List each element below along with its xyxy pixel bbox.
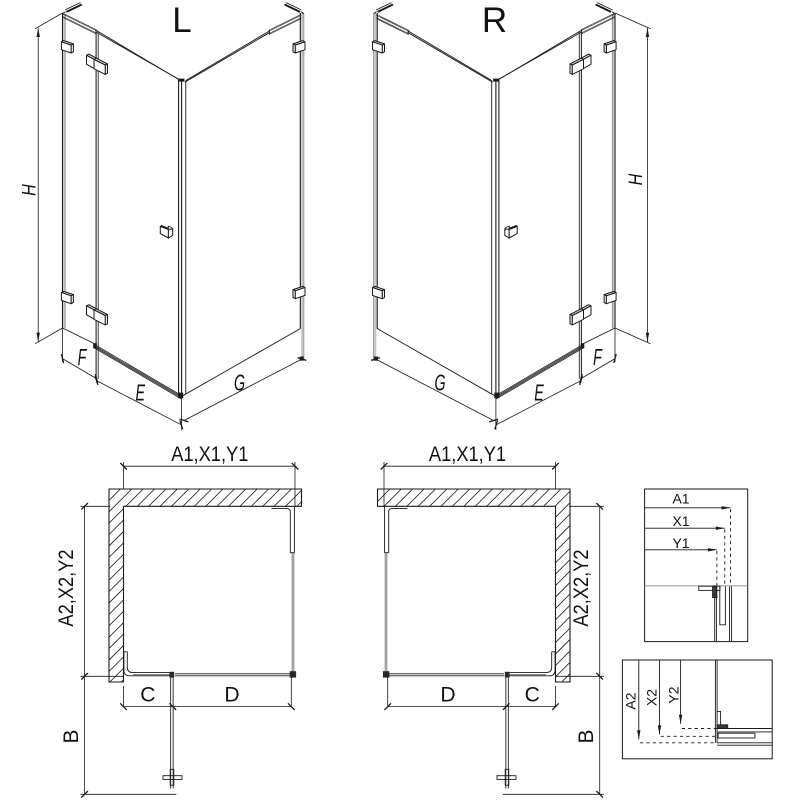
svg-text:R: R bbox=[482, 1, 507, 40]
svg-text:X2: X2 bbox=[644, 689, 660, 706]
svg-text:D: D bbox=[440, 684, 455, 707]
svg-text:H: H bbox=[18, 184, 40, 196]
svg-text:C: C bbox=[525, 684, 540, 707]
svg-text:F: F bbox=[78, 346, 88, 371]
svg-text:A2,X2,Y2: A2,X2,Y2 bbox=[55, 549, 78, 626]
svg-text:A1,X1,Y1: A1,X1,Y1 bbox=[429, 443, 506, 466]
svg-text:H: H bbox=[625, 173, 647, 185]
svg-text:D: D bbox=[224, 684, 239, 707]
svg-text:B: B bbox=[575, 729, 598, 743]
svg-text:F: F bbox=[593, 346, 603, 371]
svg-text:A1,X1,Y1: A1,X1,Y1 bbox=[171, 443, 248, 466]
svg-text:E: E bbox=[135, 381, 145, 406]
svg-text:A1: A1 bbox=[672, 491, 689, 507]
svg-text:G: G bbox=[234, 371, 245, 396]
svg-text:Y2: Y2 bbox=[666, 686, 682, 703]
svg-text:Y1: Y1 bbox=[672, 535, 689, 551]
svg-text:X1: X1 bbox=[672, 513, 689, 529]
svg-text:G: G bbox=[434, 371, 445, 396]
svg-text:A2: A2 bbox=[623, 692, 639, 709]
svg-text:A2,X2,Y2: A2,X2,Y2 bbox=[570, 549, 593, 626]
svg-text:C: C bbox=[140, 684, 155, 707]
svg-text:B: B bbox=[60, 729, 83, 743]
svg-text:E: E bbox=[534, 381, 544, 406]
svg-text:L: L bbox=[172, 1, 191, 40]
